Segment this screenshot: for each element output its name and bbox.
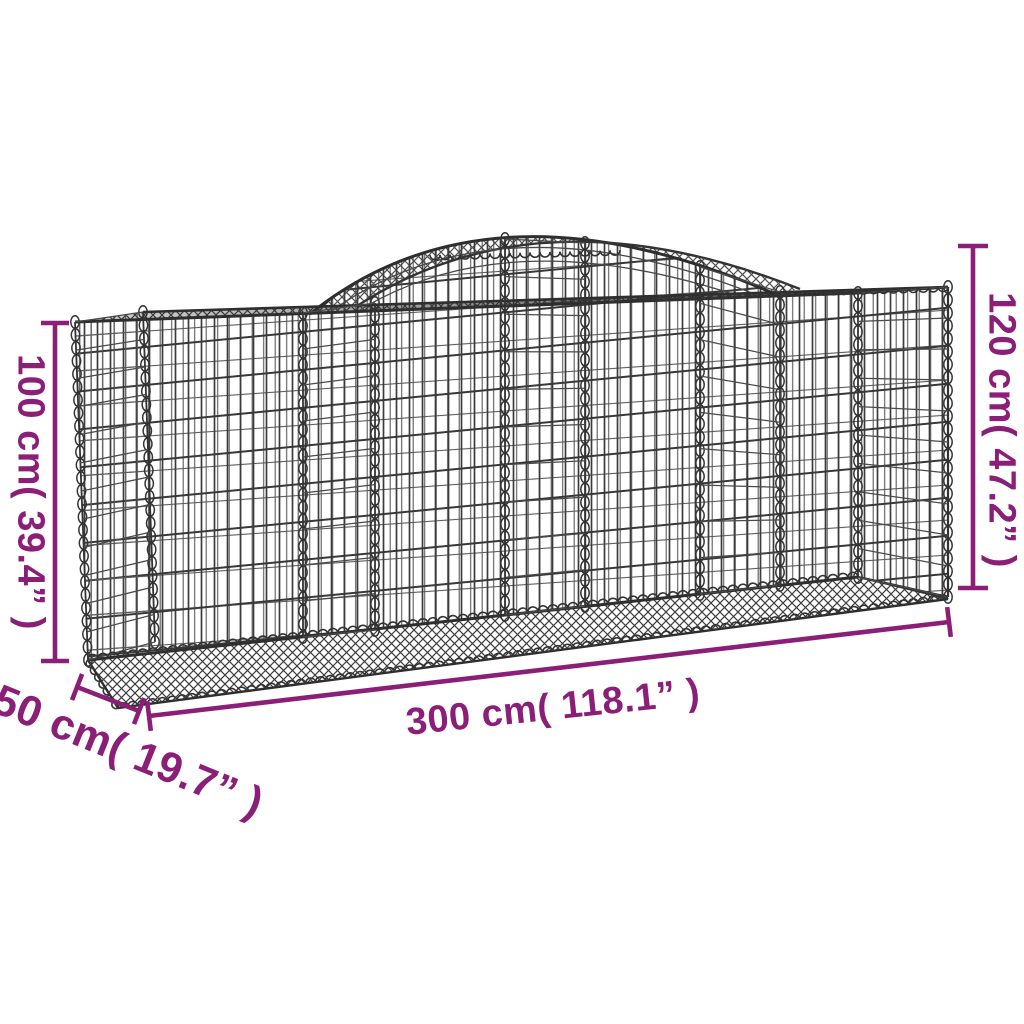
gabion-basket-illustration [0, 0, 1024, 1024]
dimension-label-height-left: 100 cm( 39.4” ) [9, 354, 52, 630]
dimension-label-height-right: 120 cm( 47.2” ) [980, 292, 1023, 568]
diagram-stage: 100 cm( 39.4” ) 120 cm( 47.2” ) 300 cm( … [0, 0, 1024, 1024]
product-dimension-diagram: { "diagram": { "type": "product-dimensio… [0, 0, 1024, 1024]
basket-left-end [75, 312, 155, 660]
basket-right-end-grid [858, 287, 948, 597]
